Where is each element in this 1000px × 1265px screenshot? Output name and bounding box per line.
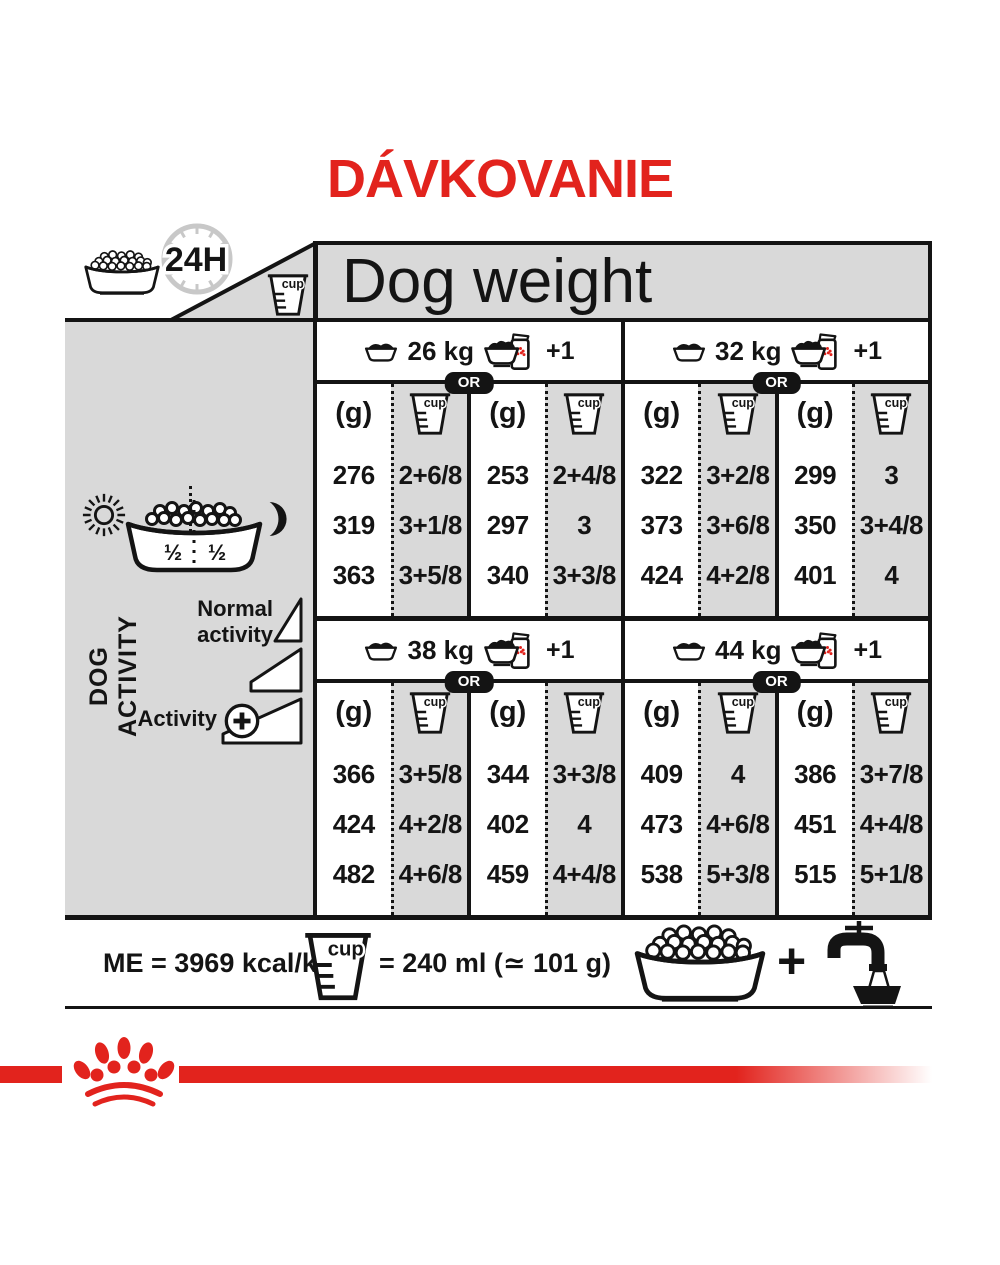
grams-value: 253 xyxy=(487,450,529,500)
grams-value: 402 xyxy=(487,799,529,849)
grams-value: 350 xyxy=(794,500,836,550)
footer-bottom-border xyxy=(65,1006,932,1009)
grams-value: 297 xyxy=(487,500,529,550)
weight-section-body: (g) 366 424 482 3+5/8 4+2/8 4+6/8 (g) 34 xyxy=(317,683,621,915)
cups-value: 5+3/8 xyxy=(706,849,769,899)
grams-header: (g) xyxy=(489,384,526,442)
table-right-border xyxy=(928,241,932,920)
grams-value: 373 xyxy=(641,500,683,550)
cups-column-dry: 2+6/8 3+1/8 3+5/8 xyxy=(391,384,468,616)
measuring-cup-icon xyxy=(266,270,310,318)
grams-value: 386 xyxy=(794,749,836,799)
moon-icon xyxy=(264,500,296,538)
grams-value: 366 xyxy=(333,749,375,799)
feeding-guide-panel: DÁVKOVANIE 24H Dog weight xyxy=(0,0,1000,1265)
grams-value: 340 xyxy=(487,550,529,600)
weight-label: 32 kg xyxy=(715,336,782,367)
grams-value: 363 xyxy=(333,550,375,600)
cup-equals-label: = 240 ml (≃ 101 g) xyxy=(379,920,611,1006)
grams-value: 482 xyxy=(333,849,375,899)
bowl-plus-pouch-icon xyxy=(789,630,845,672)
dry-bowl-icon xyxy=(671,339,707,363)
cups-column-with-wet: 2+4/8 3 3+3/8 xyxy=(545,384,622,616)
cups-value: 4+2/8 xyxy=(706,550,769,600)
cups-column-with-wet: 3 3+4/8 4 xyxy=(852,384,928,616)
weight-section: 26 kg +1 OR (g) 276 319 363 2+6/8 3+1/8 … xyxy=(317,322,621,616)
grams-column-dry: (g) 366 424 482 xyxy=(317,683,391,915)
dog-activity-label: DOG ACTIVITY xyxy=(85,588,119,764)
bowl-plus-pouch-icon xyxy=(482,331,538,373)
kibble-bowl-icon xyxy=(78,242,166,304)
measuring-cup-icon xyxy=(408,389,452,437)
measuring-cup-icon xyxy=(562,688,606,736)
plus-one-label: +1 xyxy=(546,337,575,366)
measuring-cup-icon xyxy=(716,389,760,437)
cups-value: 2+6/8 xyxy=(399,450,462,500)
half-left-label: ½ xyxy=(164,540,182,565)
weight-section-body: (g) 276 319 363 2+6/8 3+1/8 3+5/8 (g) 25 xyxy=(317,384,621,616)
measuring-cup-icon xyxy=(408,688,452,736)
weight-section-header: 38 kg +1 OR xyxy=(317,621,621,683)
cups-value: 4 xyxy=(577,799,591,849)
grams-value: 459 xyxy=(487,849,529,899)
dry-bowl-icon xyxy=(363,339,399,363)
weight-section-body: (g) 322 373 424 3+2/8 3+6/8 4+2/8 (g) 29 xyxy=(625,384,928,616)
cups-value: 3+2/8 xyxy=(706,450,769,500)
plus-one-label: +1 xyxy=(853,636,882,665)
cups-column-dry: 3+2/8 3+6/8 4+2/8 xyxy=(698,384,774,616)
cups-value: 4+4/8 xyxy=(553,849,616,899)
cups-column-with-wet: 3+3/8 4 4+4/8 xyxy=(545,683,622,915)
grams-value: 319 xyxy=(333,500,375,550)
grams-value: 401 xyxy=(794,550,836,600)
or-badge: OR xyxy=(752,671,801,693)
cups-value: 3+6/8 xyxy=(706,500,769,550)
grams-column-dry: (g) 276 319 363 xyxy=(317,384,391,616)
weight-section-header: 44 kg +1 OR xyxy=(625,621,928,683)
plus-one-label: +1 xyxy=(546,636,575,665)
cups-value: 4+2/8 xyxy=(399,799,462,849)
kibble-bowl-icon xyxy=(621,924,779,1004)
grams-column-with-wet: (g) 253 297 340 xyxy=(467,384,545,616)
cups-column-dry: 4 4+6/8 5+3/8 xyxy=(698,683,774,915)
plus-symbol: + xyxy=(777,920,806,1002)
grams-header: (g) xyxy=(643,384,680,442)
weight-section: 32 kg +1 OR (g) 322 373 424 3+2/8 3+6/8 … xyxy=(625,322,928,616)
cups-value: 3+5/8 xyxy=(399,749,462,799)
footer-strip: ME = 3969 kcal/kg = 240 ml (≃ 101 g) + xyxy=(65,920,932,1006)
grams-header: (g) xyxy=(643,683,680,741)
grams-value: 451 xyxy=(794,799,836,849)
paw-crown-logo xyxy=(58,1036,190,1112)
activity-label: Activity xyxy=(131,706,217,732)
dry-bowl-icon xyxy=(671,638,707,662)
weight-label: 44 kg xyxy=(715,635,782,666)
weight-section: 38 kg +1 OR (g) 366 424 482 3+5/8 4+2/8 … xyxy=(317,621,621,915)
grams-column-dry: (g) 409 473 538 xyxy=(625,683,698,915)
grams-value: 409 xyxy=(641,749,683,799)
activity-wedge-small-icon xyxy=(272,596,304,644)
cups-value: 4 xyxy=(884,550,898,600)
activity-wedge-medium-icon xyxy=(248,646,304,694)
cups-value: 4+6/8 xyxy=(399,849,462,899)
dry-bowl-icon xyxy=(363,638,399,662)
grams-value: 299 xyxy=(794,450,836,500)
cups-value: 3+3/8 xyxy=(553,749,616,799)
grams-value: 424 xyxy=(641,550,683,600)
grams-header: (g) xyxy=(797,683,834,741)
plus-circle-icon xyxy=(223,702,261,740)
grams-value: 538 xyxy=(641,849,683,899)
grams-column-with-wet: (g) 299 350 401 xyxy=(775,384,852,616)
grams-header: (g) xyxy=(335,384,372,442)
cups-value: 3 xyxy=(577,500,591,550)
dog-activity-sidebar: ½ ½ DOG ACTIVITY Normal activity Activit… xyxy=(65,322,313,915)
grams-column-with-wet: (g) 344 402 459 xyxy=(467,683,545,915)
grams-header: (g) xyxy=(797,384,834,442)
measuring-cup-icon xyxy=(562,389,606,437)
weight-label: 26 kg xyxy=(407,336,474,367)
cups-value: 3 xyxy=(884,450,898,500)
weight-section-header: 32 kg +1 OR xyxy=(625,322,928,384)
cups-value: 4+6/8 xyxy=(706,799,769,849)
cups-value: 3+4/8 xyxy=(860,500,923,550)
page-title: DÁVKOVANIE xyxy=(0,148,1000,210)
grams-value: 344 xyxy=(487,749,529,799)
measuring-cup-icon xyxy=(716,688,760,736)
me-kcal-label: ME = 3969 kcal/kg xyxy=(103,920,333,1006)
weight-section: 44 kg +1 OR (g) 409 473 538 4 4+6/8 5+3/… xyxy=(625,621,928,915)
weight-section-header: 26 kg +1 OR xyxy=(317,322,621,384)
red-band-left xyxy=(0,1066,62,1083)
grams-header: (g) xyxy=(489,683,526,741)
weight-label: 38 kg xyxy=(407,635,474,666)
grams-column-with-wet: (g) 386 451 515 xyxy=(775,683,852,915)
normal-activity-label: Normal activity xyxy=(121,596,273,648)
red-band-right xyxy=(179,1066,932,1083)
or-badge: OR xyxy=(445,372,494,394)
bowl-plus-pouch-icon xyxy=(789,331,845,373)
cups-value: 3+7/8 xyxy=(860,749,923,799)
cups-value: 4+4/8 xyxy=(860,799,923,849)
grams-value: 515 xyxy=(794,849,836,899)
cups-value: 3+3/8 xyxy=(553,550,616,600)
cups-column-dry: 3+5/8 4+2/8 4+6/8 xyxy=(391,683,468,915)
weight-section-body: (g) 409 473 538 4 4+6/8 5+3/8 (g) 386 xyxy=(625,683,928,915)
cups-value: 2+4/8 xyxy=(553,450,616,500)
grams-value: 424 xyxy=(333,799,375,849)
or-badge: OR xyxy=(752,372,801,394)
cups-value: 5+1/8 xyxy=(860,849,923,899)
dog-weight-title: Dog weight xyxy=(342,243,652,320)
or-badge: OR xyxy=(445,671,494,693)
measuring-cup-icon xyxy=(301,926,375,1004)
grams-value: 322 xyxy=(641,450,683,500)
measuring-cup-icon xyxy=(869,389,913,437)
half-right-label: ½ xyxy=(208,540,226,565)
half-half-bowl-icon: ½ ½ xyxy=(118,498,270,580)
water-tap-icon xyxy=(817,920,901,1008)
cups-value: 3+1/8 xyxy=(399,500,462,550)
grams-header: (g) xyxy=(335,683,372,741)
cups-value: 3+5/8 xyxy=(399,550,462,600)
grams-value: 276 xyxy=(333,450,375,500)
cups-value: 4 xyxy=(731,749,745,799)
cups-column-with-wet: 3+7/8 4+4/8 5+1/8 xyxy=(852,683,928,915)
header-top-border xyxy=(313,241,932,245)
plus-one-label: +1 xyxy=(853,337,882,366)
grams-column-dry: (g) 322 373 424 xyxy=(625,384,698,616)
grams-value: 473 xyxy=(641,799,683,849)
measuring-cup-icon xyxy=(869,688,913,736)
bowl-plus-pouch-icon xyxy=(482,630,538,672)
